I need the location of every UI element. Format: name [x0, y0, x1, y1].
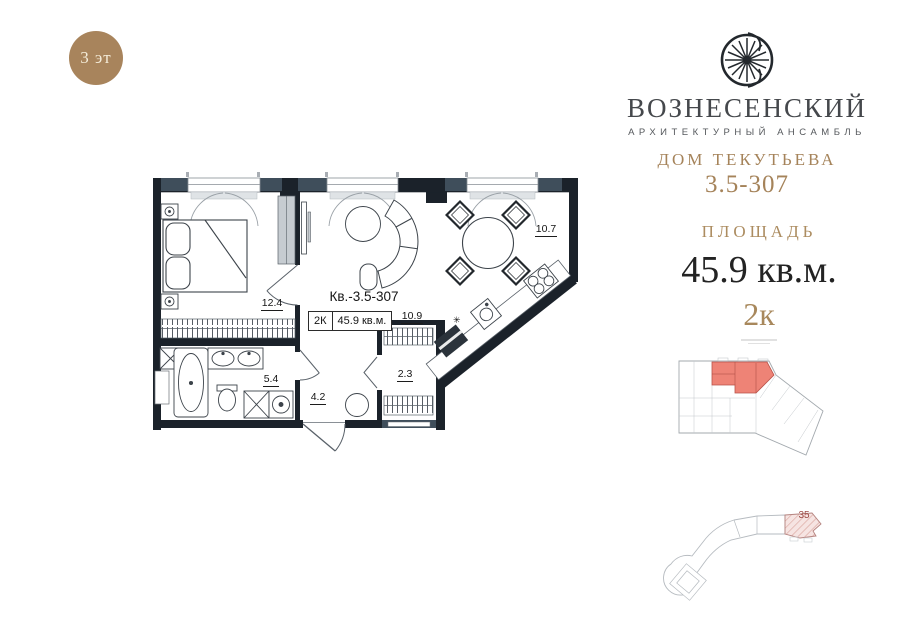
spec-rooms: 2К: [309, 312, 333, 330]
spec-area: 45.9 кв.м.: [333, 312, 392, 330]
floor-badge-label: 3 эт: [80, 48, 111, 68]
brand-building: ДОМ ТЕКУТЬЕВА: [598, 150, 896, 170]
flyer-page: 3 эт ВОЗНЕСЕНСКИЙ АРХИТЕК: [0, 0, 900, 637]
room-area-dining: 10.7: [531, 223, 561, 235]
room-area-bedroom: 12.4: [257, 297, 287, 309]
plan-labels: Кв.-3.5-307 2К 45.9 кв.м. 12.4 10.7 10.9…: [145, 172, 595, 457]
floor-badge: 3 эт: [69, 31, 123, 85]
kitchen-vent-symbol: ✳: [453, 315, 461, 326]
room-area-hallway: 4.2: [303, 391, 333, 403]
site-plan: [648, 474, 893, 606]
area-value: 45.9 кв.м.: [630, 248, 888, 292]
area-info-block: ПЛОЩАДЬ 45.9 кв.м. 2к: [630, 222, 888, 346]
floor-overview-plan: [672, 354, 888, 460]
watermark: [739, 339, 779, 344]
main-floor-plan: Кв.-3.5-307 2К 45.9 кв.м. 12.4 10.7 10.9…: [145, 172, 595, 457]
brand-unit-number: 3.5-307: [598, 171, 896, 199]
spec-box: 2К 45.9 кв.м.: [308, 311, 392, 331]
room-area-bathroom: 5.4: [256, 373, 286, 385]
apartment-number-label: Кв.-3.5-307: [305, 289, 423, 304]
room-area-wardrobe: 2.3: [390, 368, 420, 380]
brand-block: ВОЗНЕСЕНСКИЙ АРХИТЕКТУРНЫЙ АНСАМБЛЬ ДОМ …: [598, 28, 896, 199]
room-area-kitchen-hall: 10.9: [397, 310, 427, 322]
building-section-label: 35: [794, 510, 814, 521]
rooms-count: 2к: [630, 296, 888, 333]
compass-logo-icon: [715, 28, 779, 92]
brand-name: ВОЗНЕСЕНСКИЙ: [598, 94, 896, 122]
brand-tagline: АРХИТЕКТУРНЫЙ АНСАМБЛЬ: [598, 127, 896, 138]
area-label: ПЛОЩАДЬ: [630, 222, 888, 242]
